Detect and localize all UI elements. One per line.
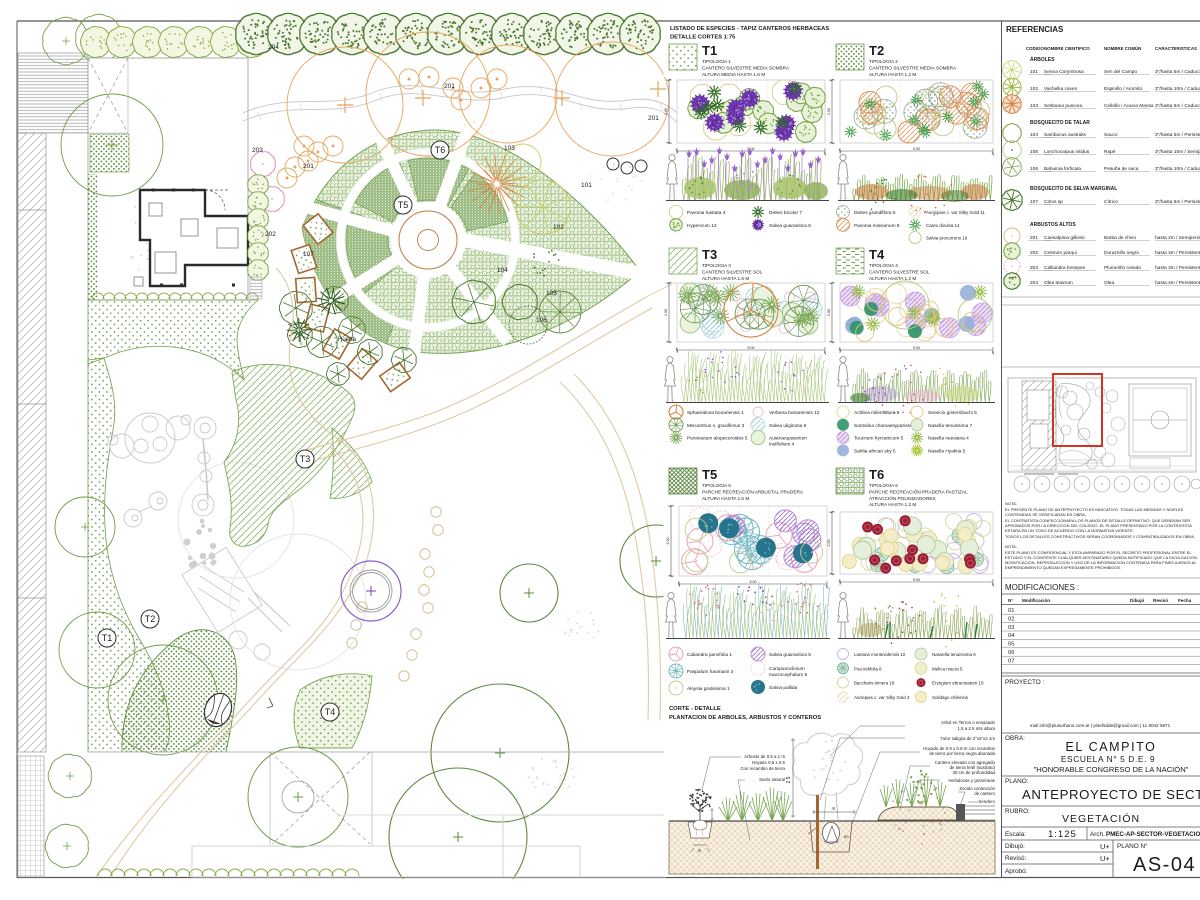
svg-text:TIPOLOGIA 1: TIPOLOGIA 1 [702, 59, 731, 64]
svg-text:VEGETACIÓN: VEGETACIÓN [1062, 812, 1140, 825]
svg-text:Carex divulsa 14: Carex divulsa 14 [926, 223, 960, 228]
svg-text:Sahlia african sky 5: Sahlia african sky 5 [854, 448, 896, 454]
svg-text:Pavonia hastata 4: Pavonia hastata 4 [687, 210, 726, 216]
svg-text:105: 105 [1030, 149, 1038, 155]
svg-text:Sen del Campo: Sen del Campo [1104, 69, 1137, 75]
svg-text:Austroeupatorium: Austroeupatorium [769, 436, 807, 442]
svg-text:CANTERO SILVESTRE MEDIA SOMBRA: CANTERO SILVESTRE MEDIA SOMBRA [702, 65, 790, 70]
svg-text:3"/hasta 10m / Semipersist.: 3"/hasta 10m / Semipersist. [1155, 149, 1200, 155]
svg-text:Citrus sp: Citrus sp [1044, 199, 1063, 205]
svg-text:Olea teaxrum: Olea teaxrum [1044, 280, 1073, 286]
svg-text:PROYECTO :: PROYECTO : [1005, 679, 1045, 686]
svg-text:105: 105 [546, 290, 557, 297]
svg-text:Cítrico: Cítrico [1104, 199, 1118, 205]
svg-text:T1: T1 [102, 633, 113, 643]
svg-text:Salvia guaranitica 5: Salvia guaranitica 5 [769, 652, 811, 658]
svg-text:Tutor saligna de 2"x2"x2.1m: Tutor saligna de 2"x2"x2.1m [940, 736, 995, 741]
svg-text:TIPOLOGIA 3: TIPOLOGIA 3 [702, 263, 731, 268]
svg-text:Hypericum 12: Hypericum 12 [687, 223, 717, 229]
svg-text:203: 203 [252, 147, 263, 154]
svg-text:T6: T6 [869, 467, 884, 482]
svg-text:CANTERO SILVESTRE MEDIA SOMBRA: CANTERO SILVESTRE MEDIA SOMBRA [869, 65, 957, 70]
svg-text:Calliandra brevipes: Calliandra brevipes [1044, 265, 1086, 271]
svg-text:2.00: 2.00 [827, 309, 831, 316]
svg-text:U+: U+ [1100, 842, 1110, 851]
svg-text:TIPOLOGIA 6: TIPOLOGIA 6 [869, 483, 898, 488]
svg-text:T5: T5 [702, 467, 717, 482]
svg-text:Pavonia missionum 8: Pavonia missionum 8 [854, 223, 900, 229]
svg-text:CANTERO SILVESTRE SOL: CANTERO SILVESTRE SOL [869, 269, 930, 274]
svg-text:EL CAMPITO: EL CAMPITO [1065, 740, 1156, 754]
svg-text:2.5: 2.5 [786, 776, 792, 783]
svg-text:5.00: 5.00 [750, 580, 757, 584]
svg-text:Senna Corymbosa: Senna Corymbosa [1044, 69, 1084, 75]
svg-text:3"/hasta 5m / Persistente: 3"/hasta 5m / Persistente [1155, 199, 1200, 205]
svg-text:Salvia procurrens 18: Salvia procurrens 18 [926, 236, 968, 241]
svg-text:NOTA:: NOTA: [1005, 544, 1017, 549]
svg-text:3"/hasta 5m / Persistente: 3"/hasta 5m / Persistente [1155, 132, 1200, 138]
svg-text:60: 60 [844, 834, 849, 839]
svg-text:02: 02 [1008, 616, 1014, 622]
svg-text:PARCHE RECREACIÓN PRADERA PAST: PARCHE RECREACIÓN PRADERA PASTIZAL [869, 488, 968, 494]
svg-text:Modificación: Modificación [1022, 598, 1050, 603]
svg-text:CONTENIDAS SE VERIFICARAN EN O: CONTENIDAS SE VERIFICARAN EN OBRA. [1005, 512, 1086, 517]
svg-text:ALTURA HASTA 1.6 M: ALTURA HASTA 1.6 M [702, 276, 749, 281]
svg-text:T3: T3 [300, 454, 311, 464]
svg-text:Revisó: Revisó [1153, 598, 1168, 603]
svg-text:RUBRO:: RUBRO: [1005, 808, 1030, 815]
svg-text:2.00: 2.00 [664, 309, 668, 316]
svg-text:ARBUSTOS ALTOS: ARBUSTOS ALTOS [1030, 222, 1076, 228]
svg-text:TIPOLOGIA 5: TIPOLOGIA 5 [702, 483, 731, 488]
svg-text:203: 203 [1030, 265, 1038, 271]
svg-text:5.00: 5.00 [748, 147, 755, 151]
svg-text:TIPOLOGIA 4: TIPOLOGIA 4 [869, 263, 898, 268]
svg-text:Revisó:: Revisó: [1005, 855, 1027, 862]
svg-text:.8: .8 [831, 806, 835, 811]
svg-text:202: 202 [1030, 250, 1038, 256]
svg-text:2.00: 2.00 [666, 538, 670, 545]
svg-text:Dibujó: Dibujó [1130, 598, 1144, 603]
svg-text:ALTURA HASTA 1.2 M: ALTURA HASTA 1.2 M [869, 502, 916, 507]
svg-text:"HONORABLE CONGRESO DE LA NACI: "HONORABLE CONGRESO DE LA NACIÓN" [1034, 765, 1189, 774]
svg-text:30 cm de profundidad: 30 cm de profundidad [953, 770, 996, 775]
svg-text:REFERENCIAS: REFERENCIAS [1006, 25, 1064, 34]
svg-text:Barba de chivo: Barba de chivo [1104, 235, 1136, 241]
svg-text:Espinillo / Aromito: Espinillo / Aromito [1104, 86, 1142, 92]
svg-text:204: 204 [268, 44, 279, 51]
svg-text:201: 201 [648, 115, 659, 122]
svg-text:BOSQUECITO DE TALAR: BOSQUECITO DE TALAR [1030, 120, 1090, 126]
svg-text:PLANO N°: PLANO N° [1117, 842, 1148, 850]
svg-text:3"/hasta 10m / Caduco: 3"/hasta 10m / Caduco [1155, 166, 1200, 172]
svg-text:3"/hasta 5m / Caduco: 3"/hasta 5m / Caduco [1155, 69, 1200, 75]
svg-text:TODOS LOS DETALLES CONSTRUCTIV: TODOS LOS DETALLES CONSTRUCTIVOS SERAN C… [1005, 534, 1195, 539]
svg-text:ESCUELA N° 5 D.E. 9: ESCUELA N° 5 D.E. 9 [1061, 754, 1155, 764]
svg-text:AS-04: AS-04 [1133, 854, 1196, 876]
svg-text:Duraznillo negro: Duraznillo negro [1104, 250, 1139, 256]
svg-text:103: 103 [504, 145, 515, 152]
svg-text:106: 106 [536, 317, 547, 324]
svg-text:LISTADO DE ESPECIES - TAPIZ CA: LISTADO DE ESPECIES - TAPIZ CANTEROS HER… [670, 26, 829, 32]
svg-text:106: 106 [1030, 166, 1038, 172]
svg-text:1:125: 1:125 [1048, 829, 1077, 840]
svg-text:Pennisetum alopecuroides 5: Pennisetum alopecuroides 5 [687, 436, 748, 442]
svg-text:04: 04 [1008, 633, 1015, 639]
svg-text:Fecha: Fecha [1178, 598, 1192, 603]
svg-text:T2: T2 [869, 43, 884, 58]
svg-text:Con recambio de tierra: Con recambio de tierra [740, 766, 785, 771]
svg-text:102: 102 [553, 224, 564, 231]
svg-text:ALTURA HASTA 1.6 M: ALTURA HASTA 1.6 M [702, 496, 749, 501]
svg-text:Plumerillo rosado: Plumerillo rosado [1104, 265, 1141, 271]
svg-text:06: 06 [1008, 650, 1014, 656]
svg-text:TIPOLOGIA 2: TIPOLOGIA 2 [869, 59, 898, 64]
svg-text:201: 201 [444, 83, 455, 90]
svg-text:Vachellia caven: Vachellia caven [1044, 86, 1078, 92]
svg-text:Salvia uliginosa 6: Salvia uliginosa 6 [769, 423, 807, 429]
svg-text:Caliandra parvifolia 1: Caliandra parvifolia 1 [687, 652, 732, 658]
svg-text:5.00: 5.00 [913, 346, 920, 350]
svg-text:Nasella neesiana 4: Nasella neesiana 4 [928, 436, 969, 442]
svg-text:Sendero: Sendero [978, 799, 995, 804]
svg-text:DETALLE CORTES 1:75: DETALLE CORTES 1:75 [670, 35, 736, 41]
svg-text:Asclepias c. var Silky Gold 4: Asclepias c. var Silky Gold 4 [854, 695, 910, 700]
svg-text:Dietes grandiflora 5: Dietes grandiflora 5 [854, 210, 896, 216]
svg-text:Pesuña de vaca: Pesuña de vaca [1104, 166, 1139, 172]
svg-text:Bahuinia forficata: Bahuinia forficata [1044, 166, 1081, 172]
svg-text:NOMBRE COMÚN: NOMBRE COMÚN [1104, 46, 1141, 51]
svg-text:Ceibillo / Acacia Mansa: Ceibillo / Acacia Mansa [1104, 103, 1154, 109]
svg-text:ÁRBOLES: ÁRBOLES [1030, 56, 1055, 63]
svg-text:de cantero: de cantero [974, 791, 995, 796]
svg-text:Achilea milenfolium 9: Achilea milenfolium 9 [854, 410, 900, 416]
svg-text:PMEC-AP-SECTOR-VEGETACION.: PMEC-AP-SECTOR-VEGETACION. [1106, 831, 1200, 838]
svg-text:T1: T1 [702, 43, 717, 58]
svg-text:ALTURA HASTA 1.2 M: ALTURA HASTA 1.2 M [869, 276, 916, 281]
svg-text:Nassella tenuissima 6: Nassella tenuissima 6 [932, 652, 976, 657]
svg-text:Poa iridifolia 8: Poa iridifolia 8 [854, 666, 882, 671]
svg-text:Lantana montevidensis 10: Lantana montevidensis 10 [854, 652, 906, 657]
svg-text:NOTA:: NOTA: [1005, 501, 1017, 506]
svg-text:Rapé: Rapé [1104, 149, 1116, 155]
svg-text:107: 107 [1030, 199, 1038, 205]
svg-text:104: 104 [497, 267, 508, 274]
svg-text:MODIFICACIONES :: MODIFICACIONES : [1005, 583, 1079, 592]
svg-text:Sauco: Sauco [1104, 132, 1118, 138]
svg-text:202: 202 [265, 231, 276, 238]
svg-text:T3: T3 [702, 247, 717, 262]
svg-text:Baccharis trimera 19: Baccharis trimera 19 [854, 681, 895, 686]
svg-text:Campunoclinium: Campunoclinium [769, 666, 805, 672]
svg-text:inulifolium 4: inulifolium 4 [769, 442, 795, 448]
svg-text:ALTURA HASTA 1.2 M: ALTURA HASTA 1.2 M [869, 72, 916, 77]
svg-text:Cestrum parqui: Cestrum parqui [1044, 250, 1077, 256]
svg-text:.5: .5 [697, 848, 701, 853]
svg-text:PARCHE RECREACIÓN ARBUSTAL PRA: PARCHE RECREACIÓN ARBUSTAL PRADERA [702, 488, 804, 494]
svg-text:Dibujó:: Dibujó: [1005, 843, 1025, 850]
svg-text:Salvia pallida: Salvia pallida [769, 685, 798, 691]
svg-text:Arch.: Arch. [1090, 831, 1105, 838]
svg-text:Dietes bicolor 7: Dietes bicolor 7 [769, 210, 802, 216]
svg-text:102: 102 [1030, 86, 1038, 92]
svg-text:Paspalum haumanii 3: Paspalum haumanii 3 [687, 669, 733, 675]
svg-text:107: 107 [303, 251, 314, 258]
svg-text:PLANO:: PLANO: [1005, 778, 1029, 785]
svg-text:ALTURA MEDIA HASTA 1.6 M: ALTURA MEDIA HASTA 1.6 M [702, 72, 765, 77]
svg-text:T4: T4 [325, 707, 336, 717]
svg-text:PLANTACION DE ARBOLES, ARBUSTO: PLANTACION DE ARBOLES, ARBUSTOS Y CONTER… [669, 715, 821, 721]
svg-text:5.00: 5.00 [748, 346, 755, 350]
svg-text:Sambucus australis: Sambucus australis [1044, 132, 1086, 138]
svg-text:hasta 3m / Persistente: hasta 3m / Persistente [1155, 250, 1200, 256]
svg-text:Verbena bonariensis 12: Verbena bonariensis 12 [769, 410, 820, 416]
svg-text:01: 01 [1008, 608, 1014, 614]
svg-text:Solidago chilensis: Solidago chilensis [932, 695, 969, 700]
svg-text:N°: N° [1008, 598, 1013, 603]
svg-text:CARACTERISTICAS: CARACTERISTICAS [1155, 46, 1197, 51]
svg-text:3"/hasta 5m / Caduco: 3"/hasta 5m / Caduco [1155, 103, 1200, 109]
svg-text:2.00: 2.00 [827, 540, 831, 547]
svg-text:Nasella tenuissima 7: Nasella tenuissima 7 [928, 423, 973, 429]
svg-text:Teucrium hyrcanicum 5: Teucrium hyrcanicum 5 [854, 436, 904, 442]
svg-text:101: 101 [581, 182, 592, 189]
svg-text:204: 204 [1030, 280, 1038, 286]
svg-text:1.5 a 2.5 mts altura: 1.5 a 2.5 mts altura [957, 726, 995, 731]
svg-text:T5: T5 [398, 200, 409, 210]
svg-text:hasta 2m / Semipersistente: hasta 2m / Semipersistente [1155, 235, 1200, 241]
svg-text:Melica macra 5: Melica macra 5 [932, 666, 963, 671]
svg-text:BOSQUECITO DE SELVA MARGINAL: BOSQUECITO DE SELVA MARGINAL [1030, 186, 1117, 192]
svg-text:Suelo natural: Suelo natural [759, 777, 785, 782]
svg-text:Aprobó:: Aprobó: [1005, 868, 1028, 875]
svg-text:T2: T2 [145, 614, 156, 624]
svg-text:U+: U+ [1100, 854, 1110, 863]
svg-text:Huerta: Huerta [338, 337, 357, 343]
svg-text:201: 201 [303, 163, 314, 170]
svg-text:Asclepias c. var Silky Gold 11: Asclepias c. var Silky Gold 11 [926, 210, 985, 215]
svg-text:5.00: 5.00 [913, 578, 920, 582]
svg-text:Sesbania punicea: Sesbania punicea [1044, 103, 1082, 109]
svg-text:05: 05 [1008, 642, 1014, 648]
svg-text:Sphaeralcea bonariensis 1: Sphaeralcea bonariensis 1 [687, 410, 744, 416]
svg-text:201: 201 [1030, 235, 1038, 241]
svg-text:1.00: 1.00 [664, 108, 668, 115]
svg-text:Miscanthus s. gracillimus 3: Miscanthus s. gracillimus 3 [687, 423, 745, 429]
svg-text:Aloysia gratissima 1: Aloysia gratissima 1 [687, 686, 730, 692]
svg-text:Arbusto de 0.5 a 1 m: Arbusto de 0.5 a 1 m [744, 754, 785, 759]
svg-text:CORTE - DETALLE: CORTE - DETALLE [669, 706, 721, 712]
svg-text:OBRA:: OBRA: [1005, 735, 1025, 742]
svg-text:NOMBRE CIENTIFICO: NOMBRE CIENTIFICO [1044, 46, 1090, 51]
svg-text:Arbol en Terron o envasado: Arbol en Terron o envasado [941, 720, 995, 725]
svg-text:101: 101 [1030, 69, 1038, 75]
svg-text:5.00: 5.00 [913, 147, 920, 151]
svg-text:T6: T6 [435, 145, 446, 155]
svg-text:Nasella Hyalina 5: Nasella Hyalina 5 [928, 448, 966, 454]
svg-text:Eryngium ebracteatum 10: Eryngium ebracteatum 10 [932, 681, 984, 686]
svg-text:Salvia guaranitica 6: Salvia guaranitica 6 [769, 223, 811, 229]
svg-text:Hoyado 0.5 x 0.5: Hoyado 0.5 x 0.5 [752, 760, 786, 765]
svg-text:CODIGO: CODIGO [1026, 46, 1044, 51]
svg-text:07: 07 [1008, 658, 1014, 664]
svg-text:de tierra por tierra negra abo: de tierra por tierra negra abonada [929, 751, 995, 756]
svg-text:Santolina chamaesyparissus 2: Santolina chamaesyparissus 2 [854, 423, 919, 429]
svg-text:T4: T4 [869, 247, 885, 262]
svg-text:103: 103 [1030, 103, 1038, 109]
svg-text:macrocephalum 8: macrocephalum 8 [769, 672, 807, 678]
svg-text:ATRACCIÓN POLINIZADORES: ATRACCIÓN POLINIZADORES [869, 495, 936, 501]
svg-text:03: 03 [1008, 625, 1014, 631]
svg-text:EMPRENDIMIENTO QUEDAN EXPRESAM: EMPRENDIMIENTO QUEDAN EXPRESAMENTE PROHI… [1005, 565, 1121, 570]
svg-text:Senecio griserribachi 5: Senecio griserribachi 5 [928, 410, 977, 416]
svg-text:104: 104 [1030, 132, 1038, 138]
svg-text:ANTEPROYECTO DE SECTOR: ANTEPROYECTO DE SECTOR [1022, 787, 1200, 802]
svg-text:hasta 3m / Persistente: hasta 3m / Persistente [1155, 265, 1200, 271]
svg-text:1.00: 1.00 [827, 108, 831, 115]
svg-text:Herbáceas y gramíneas: Herbáceas y gramíneas [948, 778, 995, 783]
svg-text:CANTERO SILVESTRE SOL: CANTERO SILVESTRE SOL [702, 269, 763, 274]
svg-text:Escala:: Escala: [1005, 831, 1026, 838]
svg-text:hasta 4m / Persistente: hasta 4m / Persistente [1155, 280, 1200, 286]
svg-text:ESTARA EN UN TODO DE ACUERDO C: ESTARA EN UN TODO DE ACUERDO CON LA NORM… [1005, 528, 1134, 533]
svg-text:Caesalpinia gilliesii: Caesalpinia gilliesii [1044, 235, 1085, 241]
svg-text:3"/hasta 10m / Caduco: 3"/hasta 10m / Caduco [1155, 86, 1200, 92]
svg-text:mail info@plusurbano.com.ar |: mail info@plusurbano.com.ar | pisehidde@… [1030, 723, 1171, 728]
svg-text:Olea: Olea [1104, 280, 1114, 286]
svg-text:Lonchocarpus nitidus: Lonchocarpus nitidus [1044, 149, 1090, 155]
